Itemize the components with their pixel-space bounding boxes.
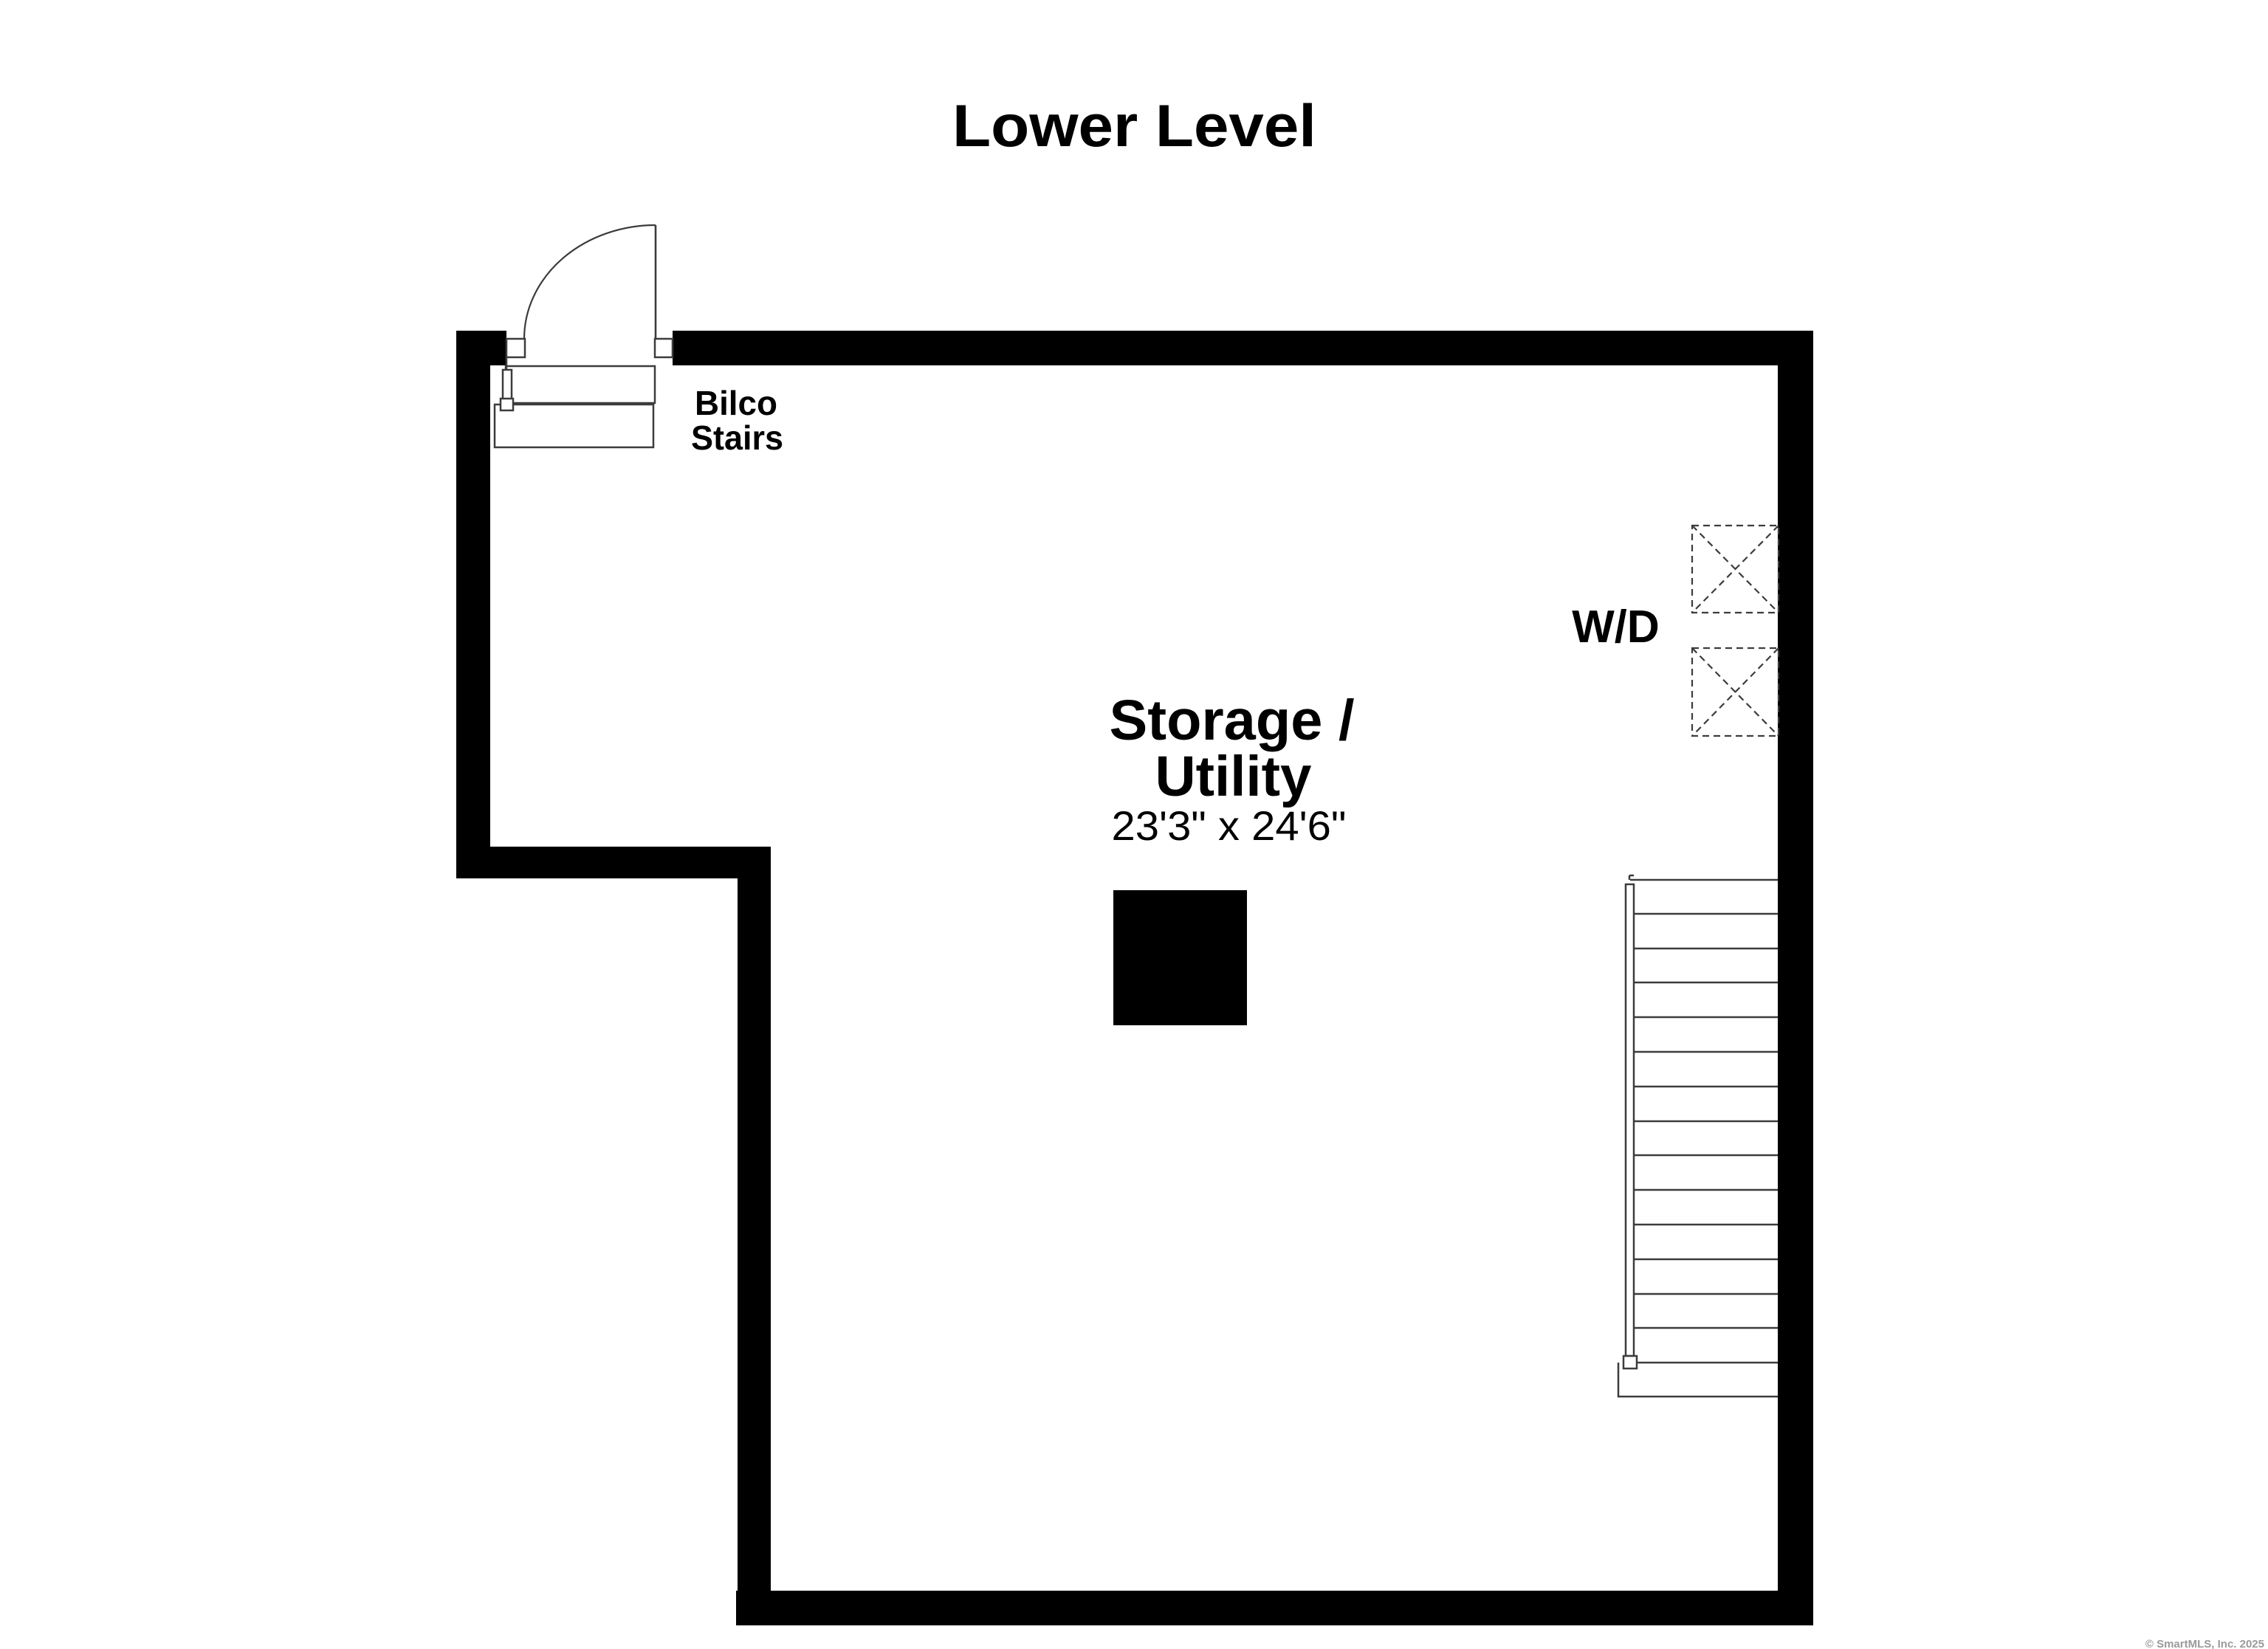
svg-text:W/D: W/D xyxy=(1572,602,1660,653)
svg-text:23'3" x 24'6": 23'3" x 24'6" xyxy=(1112,803,1347,849)
svg-text:Bilco: Bilco xyxy=(695,384,777,422)
svg-text:Lower Level: Lower Level xyxy=(952,93,1316,159)
svg-text:© SmartMLS, Inc. 2025: © SmartMLS, Inc. 2025 xyxy=(2145,1638,2264,1649)
svg-text:Stairs: Stairs xyxy=(691,419,783,457)
svg-text:Utility: Utility xyxy=(1155,745,1312,808)
svg-text:Storage /: Storage / xyxy=(1110,689,1355,752)
